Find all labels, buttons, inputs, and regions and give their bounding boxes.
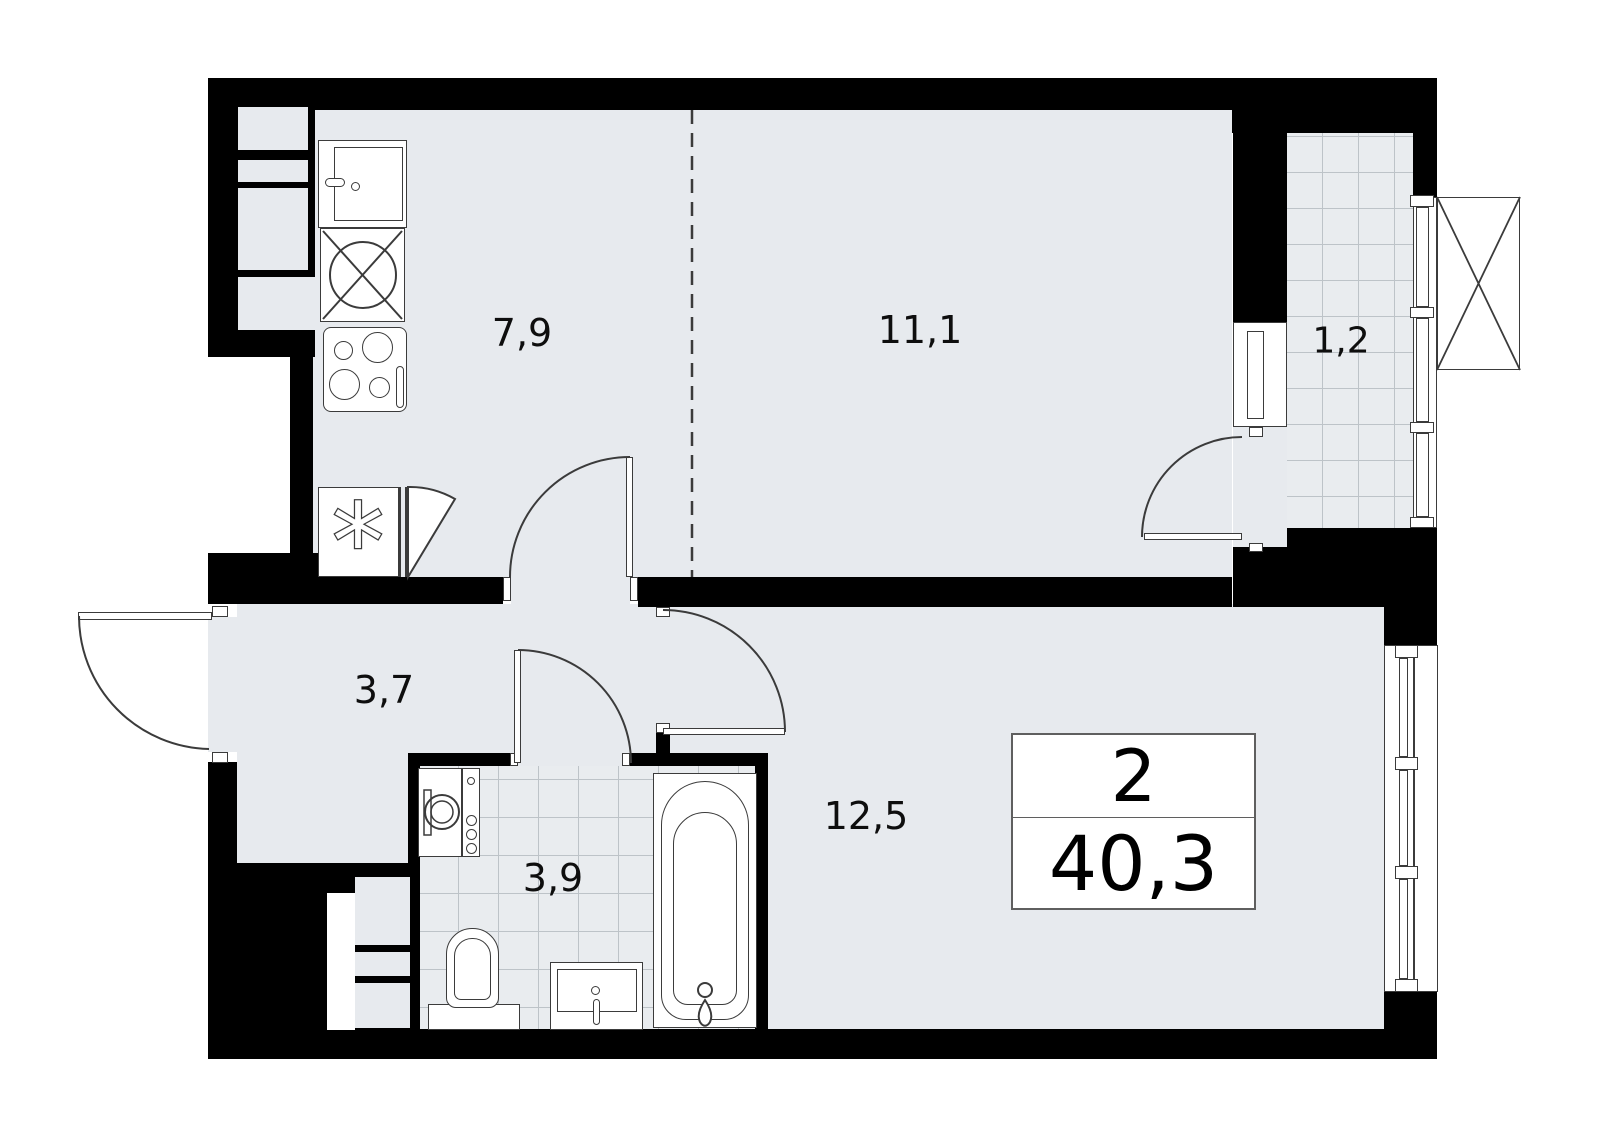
entry-door-leaf	[78, 612, 212, 620]
washer-knob-icon	[466, 843, 477, 854]
washer-knob-icon	[466, 815, 477, 826]
washer-panel-line	[461, 769, 463, 856]
door-jamb	[622, 753, 630, 766]
wall-balcony-divider-bottom	[1233, 547, 1287, 607]
vent-frame-line	[405, 487, 407, 577]
stove-burner-icon	[362, 332, 393, 363]
total-area-value: 40,3	[1013, 818, 1254, 908]
room-label-bathroom: 3,9	[523, 856, 583, 900]
balcony-glazing-pane	[1416, 433, 1429, 517]
facade-recess	[327, 893, 355, 1030]
shaft-niche	[238, 107, 308, 150]
doorway-bedroom	[656, 617, 670, 723]
wall-bottom	[327, 1029, 1437, 1059]
stove-burner-icon	[369, 377, 390, 398]
wall-bath-top-left	[408, 753, 510, 766]
toilet-bowl-inner	[454, 938, 491, 1000]
doorway-kitchen	[511, 577, 630, 604]
door-jamb	[212, 752, 228, 763]
wall-balcony-divider-top	[1233, 105, 1287, 322]
door-jamb	[503, 577, 511, 601]
door-jamb	[656, 607, 670, 617]
bedroom-window-pane	[1399, 658, 1408, 757]
room-label-balcony: 1,2	[1312, 321, 1369, 362]
shaft-niche	[238, 277, 318, 330]
vanity-handle-icon	[593, 999, 600, 1025]
stove-handle-icon	[396, 366, 404, 408]
door-jamb	[630, 577, 638, 601]
wall-right-below-window	[1384, 992, 1437, 1059]
room-label-kitchen: 7,9	[492, 311, 552, 355]
faucet-knob-icon	[351, 182, 360, 191]
wall-left-strip	[290, 357, 313, 553]
wall-rooms-divider-south	[638, 577, 1232, 607]
kitchen-washing-machine	[320, 228, 405, 322]
bedroom-door-leaf	[663, 728, 785, 735]
glazing-mullion	[1410, 195, 1434, 207]
window-mullion	[1395, 866, 1418, 879]
glazing-mullion	[1410, 517, 1434, 528]
balcony-glazing-pane	[1416, 318, 1429, 422]
washer-knob-icon	[466, 829, 477, 840]
wall-right-above-window	[1384, 607, 1437, 645]
wall-niche	[355, 877, 410, 945]
wall-above-recess	[327, 863, 355, 893]
door-jamb	[1249, 543, 1263, 552]
stove-burner-icon	[329, 369, 360, 400]
door-jamb	[212, 606, 228, 617]
room-label-bedroom: 12,5	[824, 794, 909, 838]
shaft-niche	[238, 160, 308, 182]
door-jamb	[1249, 427, 1263, 437]
balcony-door-leaf	[1144, 533, 1242, 540]
washer-knob-icon	[467, 777, 475, 785]
kitchen-door-leaf	[626, 457, 633, 577]
stove-burner-icon	[334, 341, 353, 360]
bathroom-door-leaf	[514, 650, 521, 763]
glazing-mullion	[1410, 307, 1434, 318]
window-mullion	[1395, 757, 1418, 770]
window-mullion	[1395, 645, 1418, 658]
room-label-hallway: 3,7	[354, 668, 414, 712]
wall-top	[208, 78, 1232, 110]
bedroom-window-pane	[1399, 879, 1408, 979]
vanity-drain-icon	[591, 986, 600, 995]
rooms-count-value: 2	[1013, 735, 1254, 818]
balcony-window-sash	[1247, 331, 1264, 419]
faucet-icon	[325, 178, 345, 187]
wall-corner-chunk	[208, 863, 327, 1059]
floor-kitchen-living	[313, 110, 1232, 577]
wall-stub-bedroom-door	[656, 733, 670, 753]
glazing-mullion	[1410, 422, 1434, 433]
ac-unit-box	[1437, 197, 1520, 370]
wall-balcony-bottom	[1287, 528, 1437, 607]
ventilation-box	[318, 487, 399, 577]
room-label-living: 11,1	[878, 308, 963, 352]
wall-niche	[355, 952, 410, 976]
doorway-entry	[208, 617, 237, 752]
wall-hall-top-left	[208, 577, 503, 604]
bathtub-basin	[673, 812, 737, 1005]
wall-bath-top-right	[630, 753, 768, 766]
doorway-balcony	[1233, 427, 1287, 547]
bedroom-window-pane	[1399, 770, 1408, 866]
vent-frame-line	[399, 487, 401, 577]
window-mullion	[1395, 979, 1418, 992]
entry-door-arc	[79, 616, 209, 749]
wall-niche	[355, 983, 410, 1028]
shaft-niche	[238, 188, 308, 270]
apartment-summary-box: 2 40,3	[1011, 733, 1256, 910]
doorway-bathroom	[518, 753, 622, 766]
wall-right-top	[1413, 105, 1437, 197]
balcony-glazing-pane	[1416, 207, 1429, 307]
bedroom-window-sill-outer	[1414, 645, 1438, 992]
floor-plan-canvas: { "plan": { "type": "apartment-floor-pla…	[0, 0, 1600, 1140]
